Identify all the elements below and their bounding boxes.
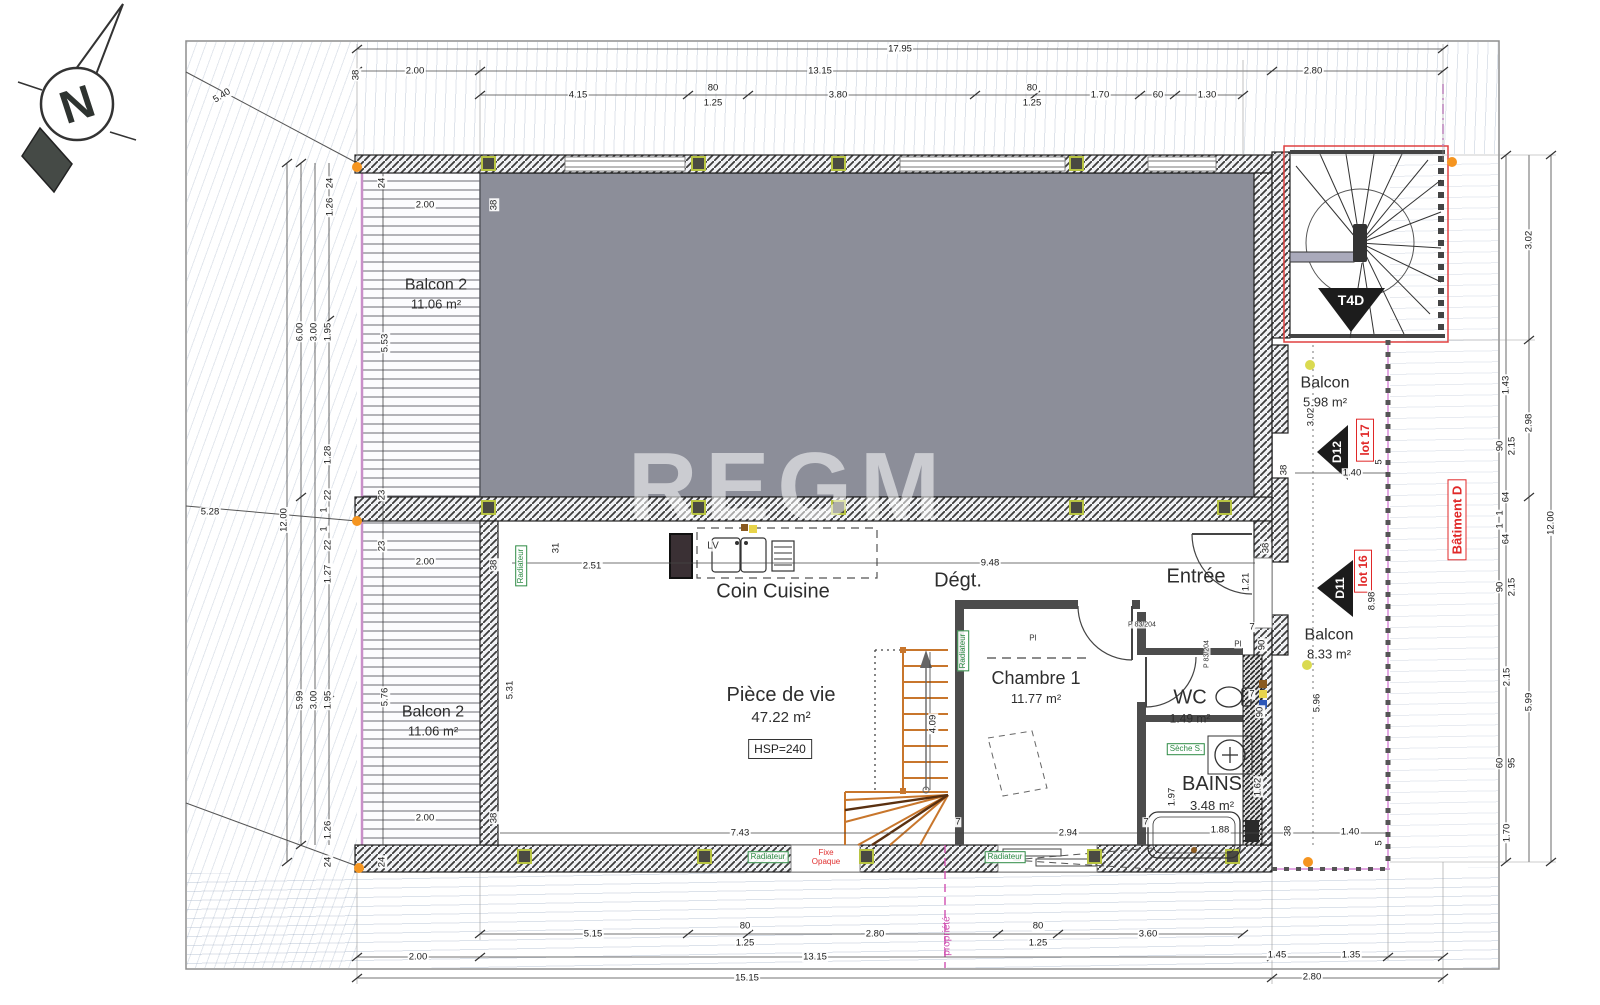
dim-label: 3.60: [1138, 929, 1159, 939]
dim-label: 90: [1257, 639, 1267, 652]
dim-label: 1.95: [323, 690, 333, 711]
dim-label: 6.00: [295, 322, 305, 343]
dim-label: 3.80: [828, 90, 849, 100]
dim-label: 9.48: [980, 558, 1001, 568]
dim-label: 38: [1279, 464, 1289, 477]
dim-label: 90: [1495, 440, 1505, 453]
dim-label: 7: [1248, 622, 1255, 632]
room-label-chambre1: Chambre 1 11.77 m²: [991, 668, 1080, 706]
balcony-deck-bottom: [362, 521, 480, 845]
room-name: Balcon 2: [405, 277, 467, 295]
dim-label: 80: [739, 921, 752, 931]
d11-label: D11: [1333, 577, 1347, 598]
lv-label: LV: [707, 541, 719, 552]
dim-label: 7: [954, 817, 961, 827]
dim-label: 2.00: [415, 200, 436, 210]
dim-label: 90: [1495, 581, 1505, 594]
fixe-line2: Opaque: [812, 858, 840, 867]
radiator-label: Radiateur: [985, 851, 1026, 863]
room-area: 11.06 m²: [405, 297, 467, 312]
d12-label: D12: [1330, 441, 1344, 463]
floor-plan-page: { "watermark": "REGM", "compass": {"lett…: [0, 0, 1600, 1005]
room-label-entree: Entrée: [1167, 566, 1226, 589]
door-swings: [1078, 534, 1252, 707]
room-name: Coin Cuisine: [716, 581, 829, 604]
room-name: Entrée: [1167, 566, 1226, 589]
dim-label: 1.62: [1253, 777, 1263, 798]
dim-label: 2.98: [1524, 413, 1534, 434]
dim-label: 1: [1495, 509, 1505, 516]
dim-label: 38: [489, 199, 499, 212]
dim-label: 1.25: [1028, 938, 1049, 948]
dim-label: 5: [1374, 458, 1384, 465]
lot16-badge: lot 16: [1354, 549, 1372, 592]
dim-label: 2.00: [415, 557, 436, 567]
dim-label: 1.30: [1197, 90, 1218, 100]
room-name: Chambre 1: [991, 668, 1080, 689]
dim-label: 1.88: [1210, 825, 1231, 835]
dim-label: 1.28: [323, 445, 333, 466]
door-ref-label: P 83/204: [1128, 622, 1156, 629]
dim-label: 1.95: [323, 322, 333, 343]
regm-watermark: REGM: [628, 432, 948, 542]
dim-label: 5.96: [1312, 693, 1322, 714]
dim-label: 1.25: [703, 98, 724, 108]
dim-label: 60: [1152, 90, 1165, 100]
dim-label: 5.99: [1524, 692, 1534, 713]
dim-label: 2.80: [1303, 66, 1324, 76]
dim-label: 38: [351, 69, 361, 82]
dim-label: 1.25: [735, 938, 756, 948]
dim-label: 1.40: [1340, 827, 1361, 837]
room-name: Dégt.: [934, 570, 982, 593]
lot17-badge: lot 17: [1356, 418, 1374, 461]
dim-label: 2.15: [1502, 667, 1512, 688]
utility-dots: [1259, 680, 1267, 708]
dim-label: 38: [489, 559, 499, 572]
dim-label: 23: [377, 489, 387, 502]
room-name: Balcon: [1301, 375, 1350, 393]
dim-label: 38: [489, 812, 499, 825]
dim-label: 95: [1507, 757, 1517, 770]
dim-label: 1.97: [1167, 787, 1177, 808]
fixe-opaque-label: Fixe Opaque: [812, 849, 840, 867]
dim-label: 64: [1501, 491, 1511, 504]
seche-serviette-label: Sèche S.: [1167, 743, 1205, 755]
dim-label: 23: [377, 540, 387, 553]
dim-label: 13.15: [807, 66, 833, 76]
radiator-label: Radiateur: [957, 631, 969, 672]
propriete-label: propriété: [942, 916, 953, 955]
dim-label: 8.98: [1367, 591, 1377, 612]
room-label-balcon-nord: Balcon 5.98 m²: [1301, 375, 1350, 410]
dim-label: 3.02: [1524, 230, 1534, 251]
room-label-piece-de-vie: Pièce de vie 47.22 m²: [727, 684, 836, 726]
dim-label: 24: [377, 177, 387, 190]
t4d-label: T4D: [1338, 292, 1364, 308]
room-label-bains: BAINS 3.48 m²: [1182, 773, 1242, 813]
radiator-label: Radiateur: [748, 851, 789, 863]
dim-label: 7: [1248, 689, 1255, 699]
dim-label: 2.51: [582, 561, 603, 571]
dim-label: 1: [1495, 522, 1505, 529]
dim-label: 1.70: [1090, 90, 1111, 100]
dim-label: 1.25: [1022, 98, 1043, 108]
room-label-wc: WC 1.49 m²: [1170, 687, 1211, 726]
dim-label: 5.53: [380, 333, 390, 354]
dim-label: 1.43: [1501, 375, 1511, 396]
dim-label: 22: [323, 539, 333, 552]
north-compass: N: [18, 4, 136, 192]
dim-label: 2.94: [1058, 828, 1079, 838]
dim-label: 1.35: [1341, 950, 1362, 960]
room-area: 11.06 m²: [402, 724, 464, 739]
pi-label: PI: [1029, 634, 1037, 643]
dim-label: 7: [1142, 817, 1149, 827]
dim-label: 7.43: [730, 828, 751, 838]
dim-label: 3.00: [309, 690, 319, 711]
dim-label: 80: [707, 83, 720, 93]
dim-label: 1.26: [323, 820, 333, 841]
dim-label: 31: [551, 542, 561, 555]
room-name: BAINS: [1182, 773, 1242, 796]
dim-label: 17.95: [887, 44, 913, 54]
dim-label: 24: [377, 856, 387, 869]
dim-label: 1.45: [1267, 950, 1288, 960]
dim-label: 2.15: [1507, 577, 1517, 598]
duct-block: [1245, 820, 1259, 842]
dim-label: 1.40: [1342, 468, 1363, 478]
dim-label: 2.00: [408, 952, 429, 962]
room-area: 47.22 m²: [727, 709, 836, 726]
room-name: WC: [1170, 687, 1211, 710]
dim-label: 1: [319, 506, 329, 513]
dim-label: 24: [323, 856, 333, 869]
room-area: 1.49 m²: [1170, 712, 1211, 726]
dim-label: 2.80: [1302, 972, 1323, 982]
dim-label: 2.00: [405, 66, 426, 76]
dim-label: 5.99: [295, 690, 305, 711]
dim-label: 12.00: [279, 507, 289, 533]
dim-label: 38: [1261, 542, 1271, 555]
room-label-degagement: Dégt.: [934, 570, 982, 593]
room-name: Pièce de vie: [727, 684, 836, 707]
dim-label: 5.15: [583, 929, 604, 939]
batiment-d-badge: Bâtiment D: [1448, 480, 1467, 561]
dim-label: 1.21: [1241, 572, 1251, 593]
room-name: Balcon 2: [402, 704, 464, 722]
door-ref-label-2: P 83/204: [1204, 640, 1211, 668]
dim-label: 24: [325, 177, 335, 190]
dim-label: 22: [323, 489, 333, 502]
dim-label: 80: [1032, 921, 1045, 931]
dim-label: 2.80: [865, 929, 886, 939]
pi-label-2: PI: [1234, 640, 1242, 649]
dim-label: 4.09: [928, 714, 938, 735]
room-label-coin-cuisine: Coin Cuisine: [716, 581, 829, 604]
dim-label: 1.26: [325, 197, 335, 218]
dim-label: 3.02: [1306, 407, 1316, 428]
dim-label: 12.00: [1546, 510, 1556, 536]
dim-label: 64: [1501, 533, 1511, 546]
dim-label: 38: [1283, 825, 1293, 838]
room-label-balcon2-bottom: Balcon 2 11.06 m²: [402, 704, 464, 739]
dim-label: 80: [1026, 83, 1039, 93]
dim-label: 5: [1374, 839, 1384, 846]
room-label-balcon-sud: Balcon 8.33 m²: [1305, 627, 1354, 662]
dim-label: 1.27: [323, 564, 333, 585]
staircase: [845, 647, 948, 845]
room-area: 11.77 m²: [991, 691, 1080, 706]
dim-label: 90: [1255, 706, 1265, 719]
dim-label: 3.00: [309, 322, 319, 343]
radiator-label: Radiateur: [515, 546, 527, 587]
dim-label: 5.76: [380, 687, 390, 708]
room-name: Balcon: [1305, 627, 1354, 645]
dim-label: 4.15: [568, 90, 589, 100]
dim-label: 15.15: [734, 973, 760, 983]
dim-label: 1: [319, 525, 329, 532]
dim-label: 60: [1495, 757, 1505, 770]
dim-label: 2.00: [415, 813, 436, 823]
spiral-staircase: [1290, 150, 1445, 338]
dim-label: 5.31: [505, 680, 515, 701]
room-area: 3.48 m²: [1182, 798, 1242, 813]
dim-label: 2.15: [1507, 436, 1517, 457]
dim-label: 1.70: [1502, 823, 1512, 844]
room-label-balcon2-top: Balcon 2 11.06 m²: [405, 277, 467, 312]
room-area: 8.33 m²: [1305, 647, 1354, 662]
ceiling-height-box: HSP=240: [748, 739, 812, 759]
dim-label: 5.28: [200, 507, 221, 517]
dim-label: 13.15: [802, 952, 828, 962]
